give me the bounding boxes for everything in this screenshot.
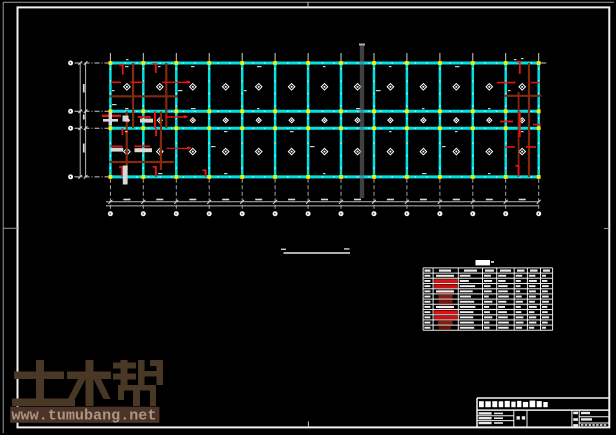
svg-text:www.tumubang.net: www.tumubang.net [12,406,157,424]
